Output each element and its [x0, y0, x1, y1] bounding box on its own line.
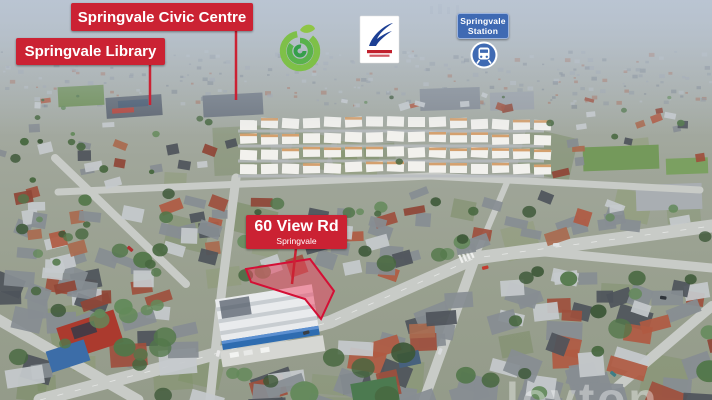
retail-centre-logo-icon	[360, 16, 399, 63]
label-civic-centre: Springvale Civic Centre	[71, 3, 253, 31]
logo-caption	[367, 50, 392, 53]
label-station-line1: Springvale	[460, 16, 505, 26]
label-civic-centre-text: Springvale Civic Centre	[78, 9, 246, 26]
sports-field	[583, 145, 660, 172]
property-address-subtitle: Springvale	[276, 237, 316, 246]
label-library-text: Springvale Library	[25, 43, 157, 60]
label-property-address: 60 View Rd Springvale	[246, 215, 347, 249]
logo-caption	[370, 55, 390, 57]
label-library: Springvale Library	[16, 38, 165, 65]
label-station: Springvale Station	[457, 13, 509, 39]
label-station-line2: Station	[468, 26, 498, 36]
property-address-title: 60 View Rd	[254, 219, 338, 235]
aerial-photo: Springvale Civic Centre Springvale Libra…	[0, 0, 712, 400]
train-icon	[471, 42, 498, 69]
watermark: leyton	[506, 372, 659, 400]
